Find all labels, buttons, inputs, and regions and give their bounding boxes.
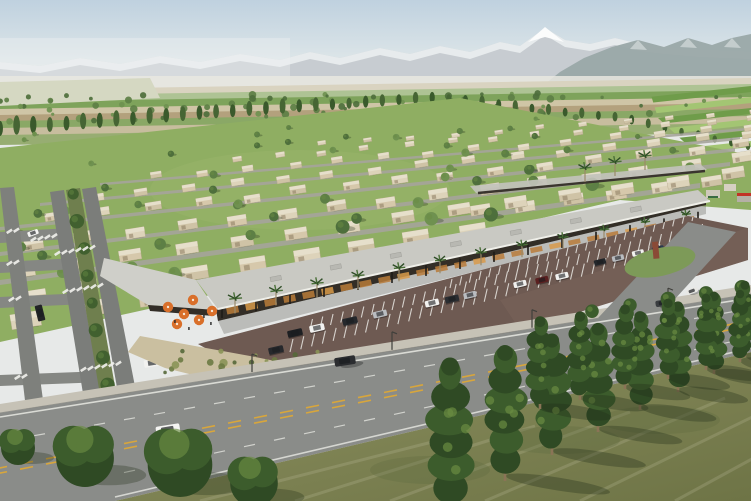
poplar-tree: [97, 113, 103, 128]
house-patio: [230, 221, 235, 226]
house-patio: [148, 206, 152, 210]
round-tree-light: [66, 426, 93, 453]
tree-highlight: [580, 356, 586, 362]
orchard-tree: [480, 92, 484, 96]
tree-highlight: [591, 371, 598, 378]
tree-highlight: [551, 386, 559, 394]
house-patio: [735, 144, 739, 148]
median-tree-light: [83, 271, 89, 277]
tree-highlight: [541, 363, 547, 369]
orchard-tree: [140, 92, 146, 98]
desert-shrub: [207, 359, 214, 366]
tree-highlight: [626, 365, 631, 370]
yard-tree-light: [321, 195, 325, 199]
yard-tree-light: [170, 268, 175, 273]
tree-top: [497, 345, 513, 361]
house-patio: [705, 182, 710, 187]
red-sign: [737, 193, 751, 196]
orchard-tree: [534, 90, 540, 96]
median-tree-light: [102, 379, 108, 385]
house-patio: [655, 188, 660, 193]
house-patio: [180, 249, 185, 254]
house-patio: [379, 203, 384, 208]
yard-tree-light: [35, 210, 39, 214]
pedestrian: [210, 322, 212, 325]
yard-tree-light: [353, 215, 358, 220]
tree-top: [620, 305, 630, 315]
tree-highlight: [461, 424, 471, 434]
tree-highlight: [639, 331, 645, 337]
orchard-tree: [353, 101, 359, 107]
house-patio: [346, 186, 350, 190]
poplar-tree: [546, 104, 551, 115]
tree-highlight: [746, 318, 750, 322]
poplar-tree: [346, 98, 351, 109]
house-patio: [508, 203, 513, 208]
orchard-tree: [125, 96, 132, 103]
poplar-tree: [246, 101, 252, 116]
tree-highlight: [676, 317, 682, 323]
orchard-tree: [26, 94, 31, 99]
poplar-tree: [296, 99, 302, 112]
house-patio: [588, 160, 592, 164]
tree-highlight: [499, 420, 507, 428]
poplar-tree: [130, 112, 136, 125]
orchard-tree: [646, 110, 653, 117]
tree-top: [575, 311, 585, 321]
tree-highlight: [715, 312, 720, 317]
tree-top: [535, 316, 546, 327]
yard-tree-light: [102, 185, 105, 188]
yard-tree-light: [22, 138, 24, 140]
tree-top: [702, 294, 711, 303]
yard-tree-light: [394, 135, 397, 138]
orchard-tree: [203, 111, 209, 117]
orchard-tree: [267, 96, 272, 101]
orchard-tree: [255, 111, 261, 117]
poplar-tree: [313, 97, 319, 111]
house-patio: [129, 234, 134, 239]
umbrella-tip: [176, 323, 178, 325]
orchard-tree: [18, 104, 23, 109]
round-tree-light: [7, 429, 23, 445]
house-patio: [432, 195, 437, 200]
yard-tree-light: [462, 150, 466, 154]
orchard-tree: [290, 104, 297, 111]
median-tree-light: [71, 216, 78, 223]
house-patio: [474, 210, 479, 215]
house-patio: [330, 206, 335, 211]
orchard-tree: [92, 102, 99, 109]
yard-tree-light: [255, 143, 258, 146]
yard-tree-light: [270, 213, 274, 217]
orchard-tree: [508, 94, 515, 101]
poplar-tree: [579, 108, 584, 119]
yard-tree-light: [89, 161, 92, 164]
tree-top: [741, 281, 750, 290]
house-patio: [615, 190, 620, 195]
tree-highlight: [443, 442, 453, 452]
orchard-tree: [560, 94, 566, 100]
parkway-tree-light: [701, 288, 707, 294]
house-patio: [692, 151, 696, 155]
pedestrian: [188, 327, 190, 330]
tree-highlight: [451, 465, 461, 475]
yard-tree-light: [670, 148, 673, 151]
house-patio: [726, 174, 731, 179]
tree-highlight: [605, 358, 612, 365]
orchard-tree: [738, 95, 742, 99]
poplar-tree: [230, 104, 236, 117]
tree-highlight: [618, 361, 623, 366]
house-patio: [181, 225, 186, 230]
yard-tree-light: [473, 177, 477, 181]
poplar-tree: [163, 108, 169, 122]
house-patio: [123, 256, 128, 261]
tree-highlight: [684, 356, 690, 362]
orchard-tree: [547, 95, 555, 103]
poplar-tree: [280, 98, 286, 113]
tree-highlight: [664, 349, 669, 354]
yard-tree-light: [287, 126, 289, 128]
orchard-tree: [119, 102, 125, 108]
tree-highlight: [510, 409, 518, 417]
tree-highlight: [581, 365, 587, 371]
tree-top: [441, 358, 459, 376]
yard-tree-light: [532, 134, 535, 137]
orchard-tree: [204, 104, 210, 110]
yard-tree-light: [534, 117, 536, 119]
yard-tree-light: [426, 214, 432, 220]
desert-shrub: [218, 349, 223, 354]
house-patio: [395, 218, 400, 223]
orchard-tree: [325, 94, 328, 97]
house-patio: [235, 242, 240, 247]
yard-tree-light: [38, 252, 43, 257]
poplar-tree: [180, 106, 186, 121]
pedestrian: [203, 315, 205, 318]
house-patio: [199, 202, 203, 206]
yard-tree-light: [255, 132, 258, 135]
poplar-tree: [13, 115, 20, 134]
orchard-tree: [91, 118, 97, 124]
poplar-tree: [197, 105, 203, 119]
orchard-tree: [684, 103, 687, 106]
yard-tree-light: [508, 126, 510, 128]
tree-highlight: [632, 346, 637, 351]
poplar-tree: [213, 104, 219, 118]
round-tree-light: [159, 429, 189, 459]
tree-highlight: [621, 340, 626, 345]
poplar-tree: [64, 116, 70, 130]
poplar-tree: [396, 94, 401, 105]
yard-tree-light: [337, 222, 343, 228]
umbrella-tip: [167, 306, 169, 308]
yard-tree-light: [235, 200, 239, 204]
tree-highlight: [709, 309, 714, 314]
tree-highlight: [708, 346, 713, 351]
house-patio: [47, 217, 51, 221]
yard-tree-light: [486, 209, 492, 215]
poplar-tree: [147, 107, 153, 123]
poplar-tree: [613, 112, 618, 122]
house-patio: [244, 265, 250, 271]
umbrella-tip: [192, 299, 194, 301]
tree-highlight: [672, 330, 677, 335]
tree-highlight: [599, 340, 606, 347]
orchard-tree: [714, 95, 718, 99]
tree-highlight: [486, 396, 494, 404]
tree-highlight: [447, 407, 457, 417]
house-patio: [288, 234, 293, 239]
tree-highlight: [540, 349, 546, 355]
yard-tree-light: [442, 174, 446, 178]
house-patio: [562, 195, 567, 200]
tree-highlight: [576, 344, 582, 350]
tree-highlight: [537, 417, 545, 425]
house-patio: [539, 167, 543, 171]
yard-tree-light: [502, 151, 506, 155]
house-patio: [671, 183, 676, 188]
tree-highlight: [699, 314, 704, 319]
umbrella-tip: [183, 313, 185, 315]
desert-shrub: [163, 371, 167, 375]
tree-highlight: [717, 307, 722, 312]
umbrella-tip: [198, 319, 200, 321]
desert-shrub: [172, 361, 180, 369]
orchard-tree: [6, 118, 13, 125]
house-patio: [735, 157, 740, 162]
tree-top: [634, 311, 646, 323]
tree-highlight: [662, 318, 667, 323]
tree-top: [592, 323, 605, 336]
orchard-tree: [89, 97, 93, 101]
aerial-rendering: [0, 0, 751, 501]
median-tree-light: [90, 325, 96, 331]
yard-tree-light: [636, 135, 638, 137]
orchard-tree: [47, 107, 53, 113]
house-patio: [452, 210, 457, 215]
desert-shrub: [180, 349, 184, 353]
yard-tree-light: [447, 165, 451, 169]
tree-highlight: [538, 376, 544, 382]
orchard-tree: [541, 105, 545, 109]
poplar-tree: [330, 99, 335, 110]
round-tree-light: [239, 457, 261, 479]
median-tree-light: [69, 190, 74, 195]
desert-shrub: [293, 352, 298, 357]
yard-tree-light: [527, 166, 531, 170]
yard-tree-light: [33, 132, 35, 134]
parkway-tree-light: [587, 306, 592, 311]
umbrella-tip: [211, 310, 213, 312]
yard-tree-light: [344, 135, 347, 138]
yard-tree-light: [457, 129, 460, 132]
scene-canvas: [0, 0, 751, 501]
orchard-tree: [639, 104, 643, 108]
yard-tree-light: [286, 140, 289, 143]
retail-outparcel: [724, 184, 736, 191]
orchard-tree: [249, 95, 256, 102]
orchard-tree: [51, 113, 54, 116]
tree-highlight: [734, 313, 738, 317]
house-patio: [247, 199, 251, 203]
yard-tree-light: [169, 151, 172, 154]
house-patio: [490, 172, 494, 176]
tree-top: [663, 299, 672, 308]
orchard-tree: [600, 96, 603, 99]
tree-highlight: [538, 343, 544, 349]
poplar-tree: [47, 117, 53, 132]
orchard-tree: [4, 98, 9, 103]
poplar-tree: [80, 113, 86, 129]
tree-highlight: [736, 334, 740, 338]
house-patio: [292, 190, 296, 194]
desert-shrub: [178, 357, 183, 362]
yard-tree-light: [135, 202, 138, 205]
yard-tree-light: [330, 148, 333, 151]
orchard-tree: [338, 103, 345, 110]
tree-top: [736, 290, 744, 298]
tree-highlight: [579, 330, 585, 336]
poplar-tree: [596, 111, 601, 120]
house-patio: [394, 180, 398, 184]
orchard-tree: [130, 105, 138, 113]
orchard-tree: [702, 99, 706, 103]
tree-highlight: [647, 335, 653, 341]
orchard-tree: [264, 115, 268, 119]
yard-tree-light: [414, 199, 419, 204]
poplar-tree: [113, 110, 119, 126]
tree-highlight: [632, 356, 637, 361]
poplar-tree: [646, 118, 651, 128]
yard-tree-light: [445, 143, 448, 146]
yard-tree-light: [210, 187, 214, 191]
poplar-tree: [380, 94, 385, 106]
median-tree-light: [98, 352, 104, 358]
tree-highlight: [671, 335, 676, 340]
yard-tree-light: [564, 147, 567, 150]
pedestrian: [174, 320, 176, 323]
orchard-tree: [48, 98, 54, 104]
median-tree-light: [88, 299, 93, 304]
poplar-tree: [563, 108, 568, 117]
desert-shrub: [232, 360, 236, 364]
green-awning: [708, 196, 718, 198]
tree-highlight: [746, 297, 751, 302]
house-patio: [518, 207, 523, 212]
yard-tree-light: [211, 172, 215, 176]
yard-tree-light: [156, 240, 161, 245]
tree-highlight: [738, 324, 742, 328]
desert-shrub: [315, 350, 319, 354]
tree-highlight: [516, 394, 524, 402]
orchard-tree: [64, 93, 69, 98]
poplar-tree: [30, 116, 36, 133]
parkway-tree: [585, 304, 599, 318]
poplar-tree: [413, 92, 418, 104]
poplar-tree: [263, 101, 269, 115]
yard-tree-light: [247, 231, 252, 236]
orchard-tree: [371, 95, 376, 100]
poplar-tree: [363, 96, 368, 108]
orchard-tree: [573, 114, 579, 120]
